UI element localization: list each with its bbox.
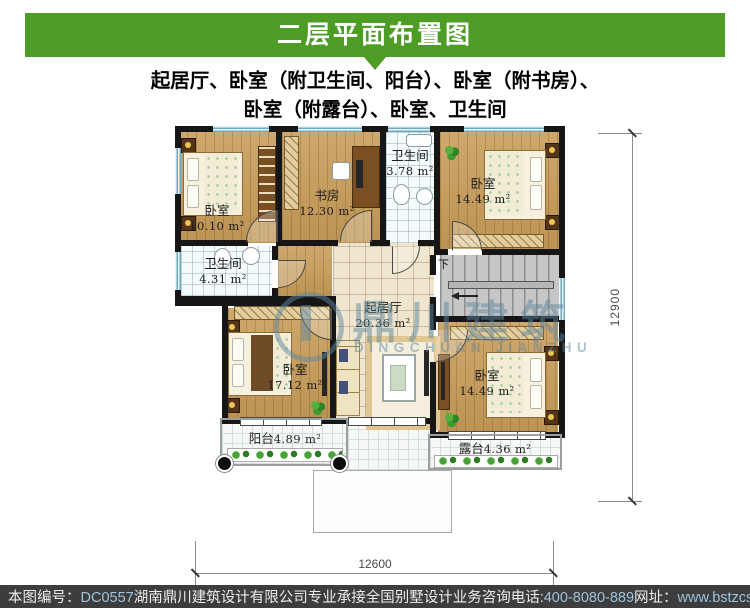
bathtub — [406, 134, 432, 147]
wall — [418, 240, 440, 246]
balcony-planter — [227, 448, 343, 462]
room-label-bedroom-top-left: 卧室10.10 m² — [172, 203, 262, 234]
dimension-extension — [195, 541, 196, 586]
column-icon — [331, 455, 348, 472]
computer-monitor-icon — [356, 160, 363, 188]
plan-summary-line1: 起居厅、卧室（附卫生间、阳台）、卧室（附书房）、 — [0, 66, 750, 95]
nightstand — [181, 138, 196, 153]
window — [213, 126, 269, 132]
drawing-number: 本图编号：DC0557 — [8, 586, 134, 607]
wall — [175, 240, 248, 246]
tv-icon — [424, 350, 429, 396]
toilet-icon — [393, 184, 410, 205]
sofa-pillow — [339, 349, 348, 362]
window — [175, 148, 181, 194]
hall-window — [348, 417, 426, 426]
room-label-bedroom-top-right: 卧室14.49 m² — [438, 176, 528, 207]
wall — [175, 296, 336, 306]
plan-summary: 起居厅、卧室（附卫生间、阳台）、卧室（附书房）、 卧室（附露台）、卧室、卫生间 — [0, 66, 750, 124]
hotline: 咨询电话:400-8080-889 — [482, 586, 634, 607]
wall — [380, 126, 386, 246]
nightstand — [544, 410, 559, 425]
nightstand — [545, 215, 560, 230]
wall — [436, 316, 561, 322]
plant-icon — [444, 412, 459, 427]
room-label-bathroom-left: 卫生间4.31 m² — [178, 256, 268, 287]
coffee-table — [382, 354, 416, 402]
stair-arrow-head — [447, 292, 459, 300]
floor-plan-page: 二层平面布置图 起居厅、卧室（附卫生间、阳台）、卧室（附书房）、 卧室（附露台）… — [0, 0, 750, 608]
window — [559, 278, 565, 320]
roof-walkway — [348, 423, 430, 470]
dimension-extension — [553, 541, 554, 586]
dimension-value-right: 12900 — [608, 288, 622, 326]
room-label-bedroom-bottom-left: 卧室17.12 m² — [250, 362, 340, 393]
room-label-terrace: 露台4.36 m² — [430, 441, 560, 457]
desk-chair — [332, 162, 350, 180]
lower-roof — [313, 470, 452, 533]
sink-icon — [416, 188, 433, 205]
wall — [272, 288, 278, 296]
window — [298, 126, 362, 132]
room-label-living-hall: 起居厅20.36 m² — [335, 300, 431, 331]
website: 网址：www.bstzcs.com — [634, 586, 750, 607]
sofa-pillow — [339, 381, 348, 394]
plant-icon — [310, 400, 325, 415]
nightstand — [544, 346, 559, 361]
window — [464, 126, 544, 132]
footer-bar: 本图编号：DC0557 湖南鼎川建筑设计有限公司专业承接全国别墅设计业务 咨询电… — [0, 585, 750, 608]
dimension-line-right — [632, 133, 633, 501]
window — [388, 126, 430, 132]
page-title: 二层平面布置图 — [25, 13, 725, 57]
plant-icon — [444, 145, 459, 160]
room-label-balcony: 阳台4.89 m² — [222, 431, 348, 447]
wall — [282, 240, 338, 246]
company-slogan: 湖南鼎川建筑设计有限公司专业承接全国别墅设计业务 — [134, 586, 482, 607]
wall — [222, 302, 228, 424]
nightstand — [545, 143, 560, 158]
room-label-study: 书房12.30 m² — [282, 188, 372, 219]
room-label-bathroom-top: 卫生间3.78 m² — [384, 148, 436, 179]
stair-handrail — [448, 281, 554, 289]
plan-summary-line2: 卧室（附露台）、卧室、卫生间 — [0, 95, 750, 124]
dimension-value-bottom: 12600 — [330, 557, 420, 571]
wall — [430, 255, 436, 275]
wall — [482, 249, 561, 255]
wall — [370, 240, 386, 246]
wall — [272, 246, 278, 260]
room-label-bedroom-bottom-right: 卧室14.49 m² — [432, 368, 542, 399]
column-icon — [216, 455, 233, 472]
stairs-down-label: 下 — [438, 256, 449, 272]
dimension-line-bottom — [195, 573, 553, 574]
